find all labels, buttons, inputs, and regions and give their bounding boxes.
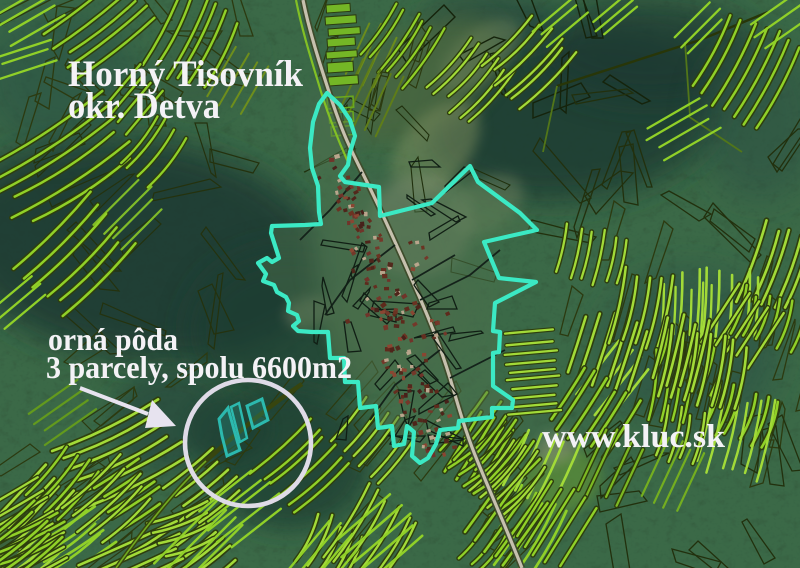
svg-text:3 parcely, spolu 6600m2: 3 parcely, spolu 6600m2 (46, 349, 352, 385)
svg-text:www.kluc.sk: www.kluc.sk (542, 419, 726, 455)
svg-text:okr. Detva: okr. Detva (68, 86, 220, 127)
